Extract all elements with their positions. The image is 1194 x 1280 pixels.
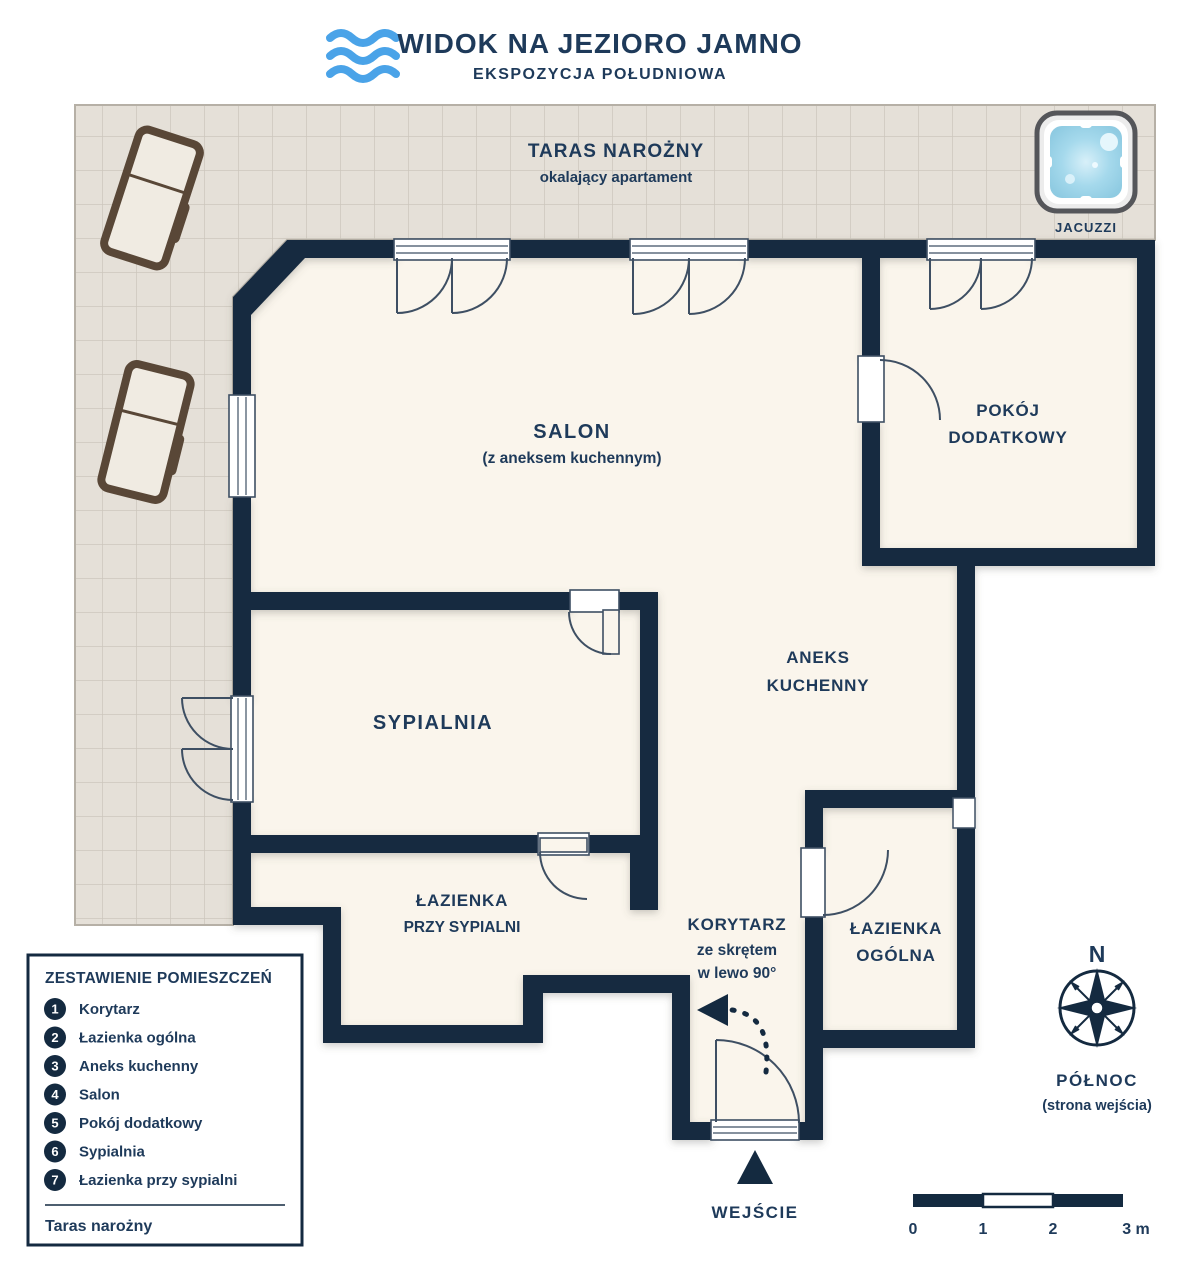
- entrance-arrow-icon: [737, 1150, 773, 1184]
- floor-plan-page: WIDOK NA JEZIORO JAMNO EKSPOZYCJA POŁUDN…: [0, 0, 1194, 1280]
- room-label-lazienka-s-1: ŁAZIENKA: [416, 891, 508, 910]
- room-label-sypialnia: SYPIALNIA: [373, 712, 493, 734]
- waves-icon: [330, 33, 396, 79]
- scale-tick: 1: [979, 1221, 988, 1238]
- legend-title: ZESTAWIENIE POMIESZCZEŃ: [45, 970, 272, 987]
- room-label-korytarz-1: KORYTARZ: [688, 915, 787, 934]
- room-label-pokoj-1: POKÓJ: [976, 401, 1040, 420]
- compass-note: (strona wejścia): [1042, 1098, 1152, 1114]
- legend-num: 7: [51, 1173, 58, 1188]
- terrace-subtitle: okalający apartament: [540, 169, 693, 186]
- room-label-lazienka-o-2: OGÓLNA: [856, 946, 935, 965]
- legend-num: 4: [51, 1087, 59, 1102]
- apartment-floor: [233, 240, 1155, 1140]
- room-label-aneks-2: KUCHENNY: [767, 676, 870, 695]
- page-title: WIDOK NA JEZIORO JAMNO: [397, 28, 802, 59]
- compass: N PÓŁNOC (strona wejścia): [1042, 941, 1152, 1114]
- legend-num: 2: [51, 1030, 58, 1045]
- header: WIDOK NA JEZIORO JAMNO EKSPOZYCJA POŁUDN…: [330, 28, 803, 83]
- legend-num: 5: [51, 1116, 58, 1131]
- legend-num: 3: [51, 1059, 58, 1074]
- scale-bar: 0 1 2 3 m: [909, 1194, 1150, 1238]
- scale-tick: 3 m: [1122, 1221, 1150, 1238]
- room-label-korytarz-2: ze skrętem: [697, 942, 777, 959]
- room-label-korytarz-3: w lewo 90°: [697, 965, 777, 982]
- legend-item: 1 Korytarz: [44, 998, 140, 1020]
- terrace-title: TARAS NAROŻNY: [528, 141, 704, 162]
- compass-direction-label: PÓŁNOC: [1056, 1071, 1138, 1090]
- jacuzzi-label: JACUZZI: [1055, 220, 1117, 235]
- compass-n-label: N: [1089, 941, 1106, 967]
- room-note-salon: (z aneksem kuchennym): [482, 450, 661, 467]
- room-label-lazienka-s-2: PRZY SYPIALNI: [404, 919, 521, 936]
- entrance-label: WEJŚCIE: [711, 1203, 798, 1222]
- legend-label: Łazienka ogólna: [79, 1030, 196, 1047]
- legend-label: Aneks kuchenny: [79, 1058, 199, 1075]
- entrance-marker: WEJŚCIE: [711, 1150, 798, 1222]
- floor-plan-svg: WIDOK NA JEZIORO JAMNO EKSPOZYCJA POŁUDN…: [0, 0, 1194, 1280]
- window-salon: [229, 395, 255, 497]
- room-label-pokoj-2: DODATKOWY: [948, 428, 1067, 447]
- legend-item: 6 Sypialnia: [44, 1141, 146, 1163]
- jacuzzi-icon: [1037, 113, 1135, 211]
- scale-tick: 2: [1049, 1221, 1058, 1238]
- legend-box: ZESTAWIENIE POMIESZCZEŃ 1 Korytarz 2 Łaz…: [28, 955, 302, 1245]
- legend-label: Pokój dodatkowy: [79, 1115, 203, 1132]
- legend-footer: Taras narożny: [45, 1218, 152, 1235]
- legend-num: 1: [51, 1002, 58, 1017]
- shaft-notch: [953, 798, 975, 828]
- room-label-lazienka-o-1: ŁAZIENKA: [850, 919, 942, 938]
- scale-tick: 0: [909, 1221, 918, 1238]
- legend-item: 4 Salon: [44, 1084, 120, 1106]
- legend-label: Salon: [79, 1087, 120, 1104]
- page-subtitle: EKSPOZYCJA POŁUDNIOWA: [473, 66, 727, 83]
- room-label-aneks-1: ANEKS: [786, 648, 850, 667]
- legend-num: 6: [51, 1144, 58, 1159]
- legend-label: Sypialnia: [79, 1144, 146, 1161]
- legend-label: Łazienka przy sypialni: [79, 1172, 237, 1189]
- room-label-salon: SALON: [533, 421, 611, 443]
- legend-label: Korytarz: [79, 1001, 140, 1018]
